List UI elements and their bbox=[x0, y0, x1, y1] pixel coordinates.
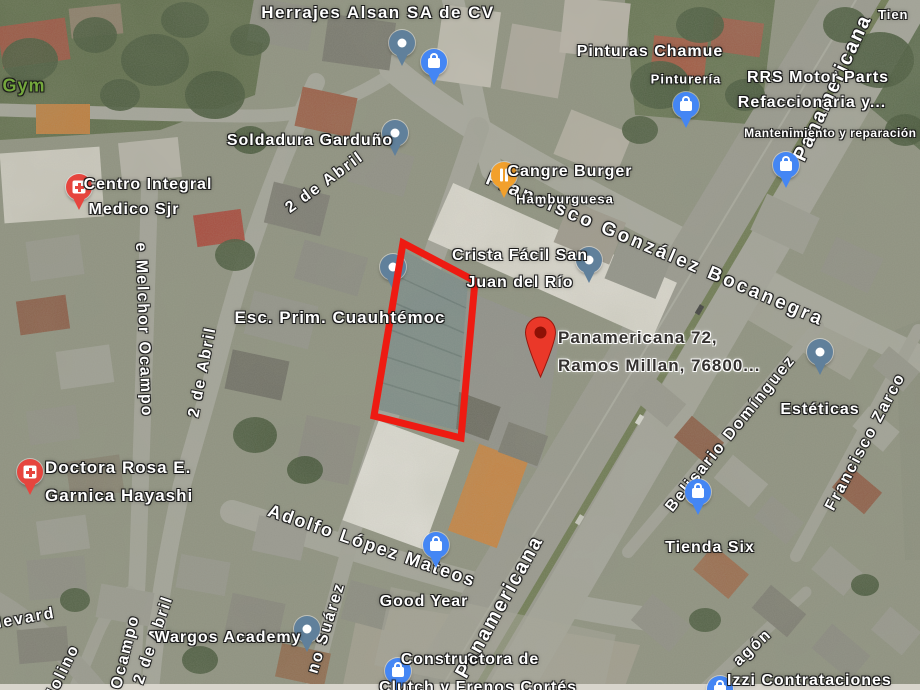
label-escuela[interactable]: Esc. Prim. Cuauhtémoc bbox=[235, 308, 446, 328]
label-wargos[interactable]: Wargos Academy bbox=[154, 629, 301, 647]
label-pinturas-1[interactable]: Pinturas Chamue bbox=[577, 43, 724, 61]
herrajes-pin[interactable] bbox=[389, 30, 415, 56]
dot-icon bbox=[816, 348, 825, 357]
label-tien-partial[interactable]: Tien bbox=[878, 7, 909, 22]
label-crista-2[interactable]: Juan del Río bbox=[466, 274, 573, 292]
label-cangre-1[interactable]: Cangre Burger bbox=[507, 163, 632, 181]
label-pinturas-2[interactable]: Pinturería bbox=[651, 72, 722, 87]
good-year-pin[interactable] bbox=[423, 532, 449, 558]
label-gym[interactable]: Gym bbox=[2, 76, 45, 97]
escuela-pin[interactable] bbox=[380, 254, 406, 280]
label-tienda-six[interactable]: Tienda Six bbox=[665, 539, 755, 557]
rrs-motor-parts-pin[interactable] bbox=[773, 152, 799, 178]
shopping-bag-icon bbox=[780, 161, 792, 171]
shopping-bag-icon bbox=[430, 541, 442, 551]
label-soldadura[interactable]: Soldadura Garduño bbox=[227, 132, 393, 150]
dot-icon bbox=[398, 39, 407, 48]
pintureria-pin[interactable] bbox=[673, 92, 699, 118]
doctora-pin[interactable] bbox=[17, 459, 43, 485]
esteticas-pin[interactable] bbox=[807, 339, 833, 365]
label-doctora-1[interactable]: Doctora Rosa E. bbox=[45, 458, 191, 478]
label-good-year[interactable]: Good Year bbox=[380, 593, 469, 611]
tienda-six-pin[interactable] bbox=[685, 479, 711, 505]
label-esteticas[interactable]: Estéticas bbox=[780, 401, 859, 419]
map-viewport[interactable]: Panamericana Francisco González Bocanegr… bbox=[0, 0, 920, 690]
red-location-marker[interactable] bbox=[524, 316, 557, 379]
shop-pin-top[interactable] bbox=[421, 49, 447, 75]
label-centro-integral-2[interactable]: Medico Sjr bbox=[89, 201, 180, 219]
label-herrajes[interactable]: Herrajes Alsan SA de CV bbox=[261, 3, 495, 23]
label-constructora-2[interactable]: Clutch y Frenos Cortés bbox=[379, 679, 577, 690]
label-doctora-2[interactable]: Garnica Hayashi bbox=[45, 486, 193, 506]
shopping-bag-icon bbox=[680, 101, 692, 111]
label-cangre-2[interactable]: Hamburguesa bbox=[516, 192, 614, 207]
label-rrs-3[interactable]: Mantenimiento y reparación ... bbox=[744, 126, 920, 140]
label-crista-1[interactable]: Crista Fácil San bbox=[452, 247, 588, 265]
label-address-2[interactable]: Ramos Millan, 76800... bbox=[558, 356, 760, 376]
label-centro-integral-1[interactable]: Centro Integral bbox=[84, 176, 213, 194]
label-izzi[interactable]: Izzi Contrataciones bbox=[727, 672, 892, 690]
hospital-cross-icon bbox=[24, 466, 37, 479]
dot-icon bbox=[303, 625, 312, 634]
label-address-1[interactable]: Panamericana 72, bbox=[558, 328, 718, 348]
shopping-bag-icon bbox=[692, 488, 704, 498]
label-constructora-1[interactable]: Constructora de bbox=[401, 651, 540, 669]
label-rrs-1[interactable]: RRS Motor Parts bbox=[747, 69, 889, 87]
shopping-bag-icon bbox=[428, 58, 440, 68]
dot-icon bbox=[389, 263, 398, 272]
shopping-bag-icon bbox=[714, 685, 726, 690]
label-rrs-2[interactable]: Refaccionaria y... bbox=[738, 94, 886, 112]
